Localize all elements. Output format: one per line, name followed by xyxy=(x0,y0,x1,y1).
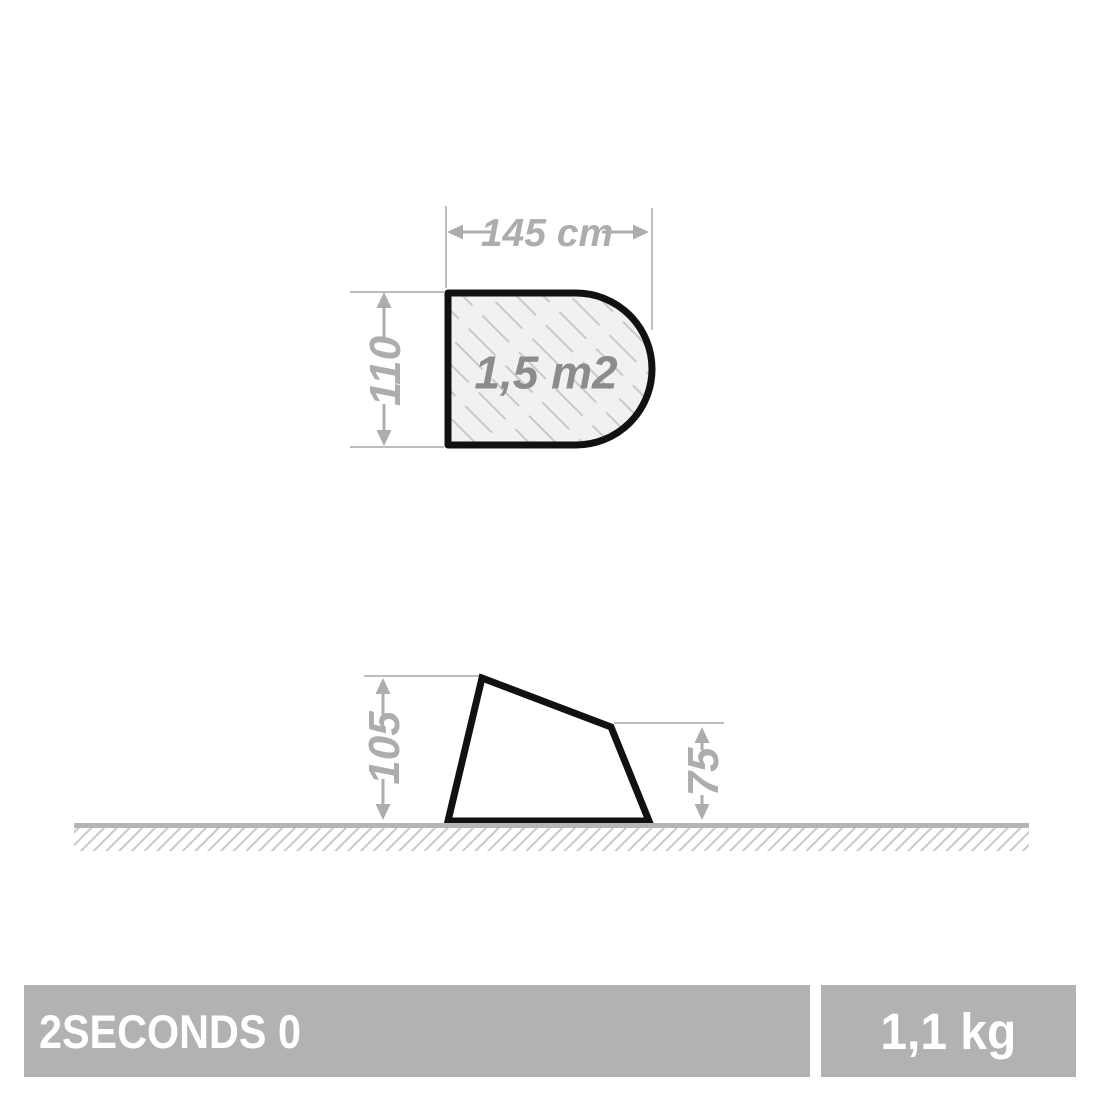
diagram-svg: 145 cm 110 1,5 m2 xyxy=(0,0,1100,1100)
side-view-diagram: 105 75 xyxy=(74,676,1029,851)
arrow-down-icon xyxy=(376,804,391,820)
top-view-height-label: 110 xyxy=(361,335,410,406)
floor-area-label: 1,5 m2 xyxy=(474,347,618,399)
product-name: 2SECONDS 0 xyxy=(24,1004,301,1059)
side-view-tent-profile xyxy=(448,678,649,821)
product-dimension-diagram: 145 cm 110 1,5 m2 xyxy=(0,0,1100,1100)
arrow-up-icon xyxy=(377,292,392,308)
top-view-width-label: 145 cm xyxy=(481,212,613,255)
arrow-left-icon xyxy=(447,225,463,240)
ground-line xyxy=(74,823,1029,828)
arrow-up-icon xyxy=(376,678,391,694)
weight-value: 1,1 kg xyxy=(881,1002,1017,1061)
top-view-height-dimension: 110 xyxy=(350,292,444,447)
top-view-diagram: 145 cm 110 1,5 m2 xyxy=(350,206,652,447)
side-view-right-height-label: 75 xyxy=(679,747,728,796)
arrow-down-icon xyxy=(377,430,392,446)
product-name-bar: 2SECONDS 0 xyxy=(24,985,810,1077)
arrow-up-icon xyxy=(695,727,710,743)
ground-hatch xyxy=(74,828,1029,851)
arrow-right-icon xyxy=(633,225,649,240)
arrow-down-icon xyxy=(695,804,710,820)
weight-bar: 1,1 kg xyxy=(821,985,1076,1077)
side-view-left-height-label: 105 xyxy=(360,711,409,785)
